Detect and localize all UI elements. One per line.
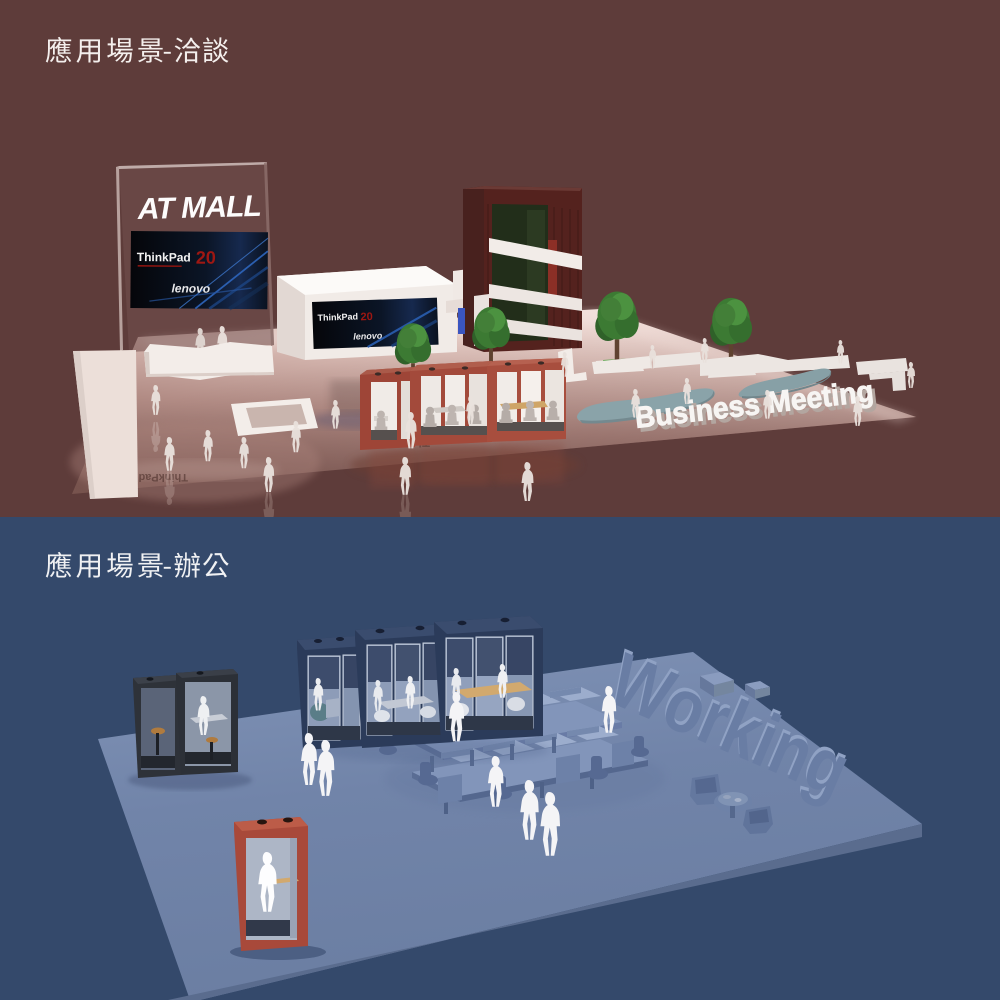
svg-text:lenovo: lenovo — [171, 281, 210, 295]
svg-text:ThinkPad: ThinkPad — [138, 471, 188, 483]
svg-text:lenovo: lenovo — [353, 331, 383, 342]
svg-text:AT MALL: AT MALL — [136, 190, 262, 226]
svg-text:20: 20 — [360, 311, 373, 323]
svg-text:ThinkPad: ThinkPad — [317, 311, 358, 322]
svg-text:ThinkPad: ThinkPad — [137, 250, 191, 264]
svg-text:20: 20 — [196, 248, 216, 268]
